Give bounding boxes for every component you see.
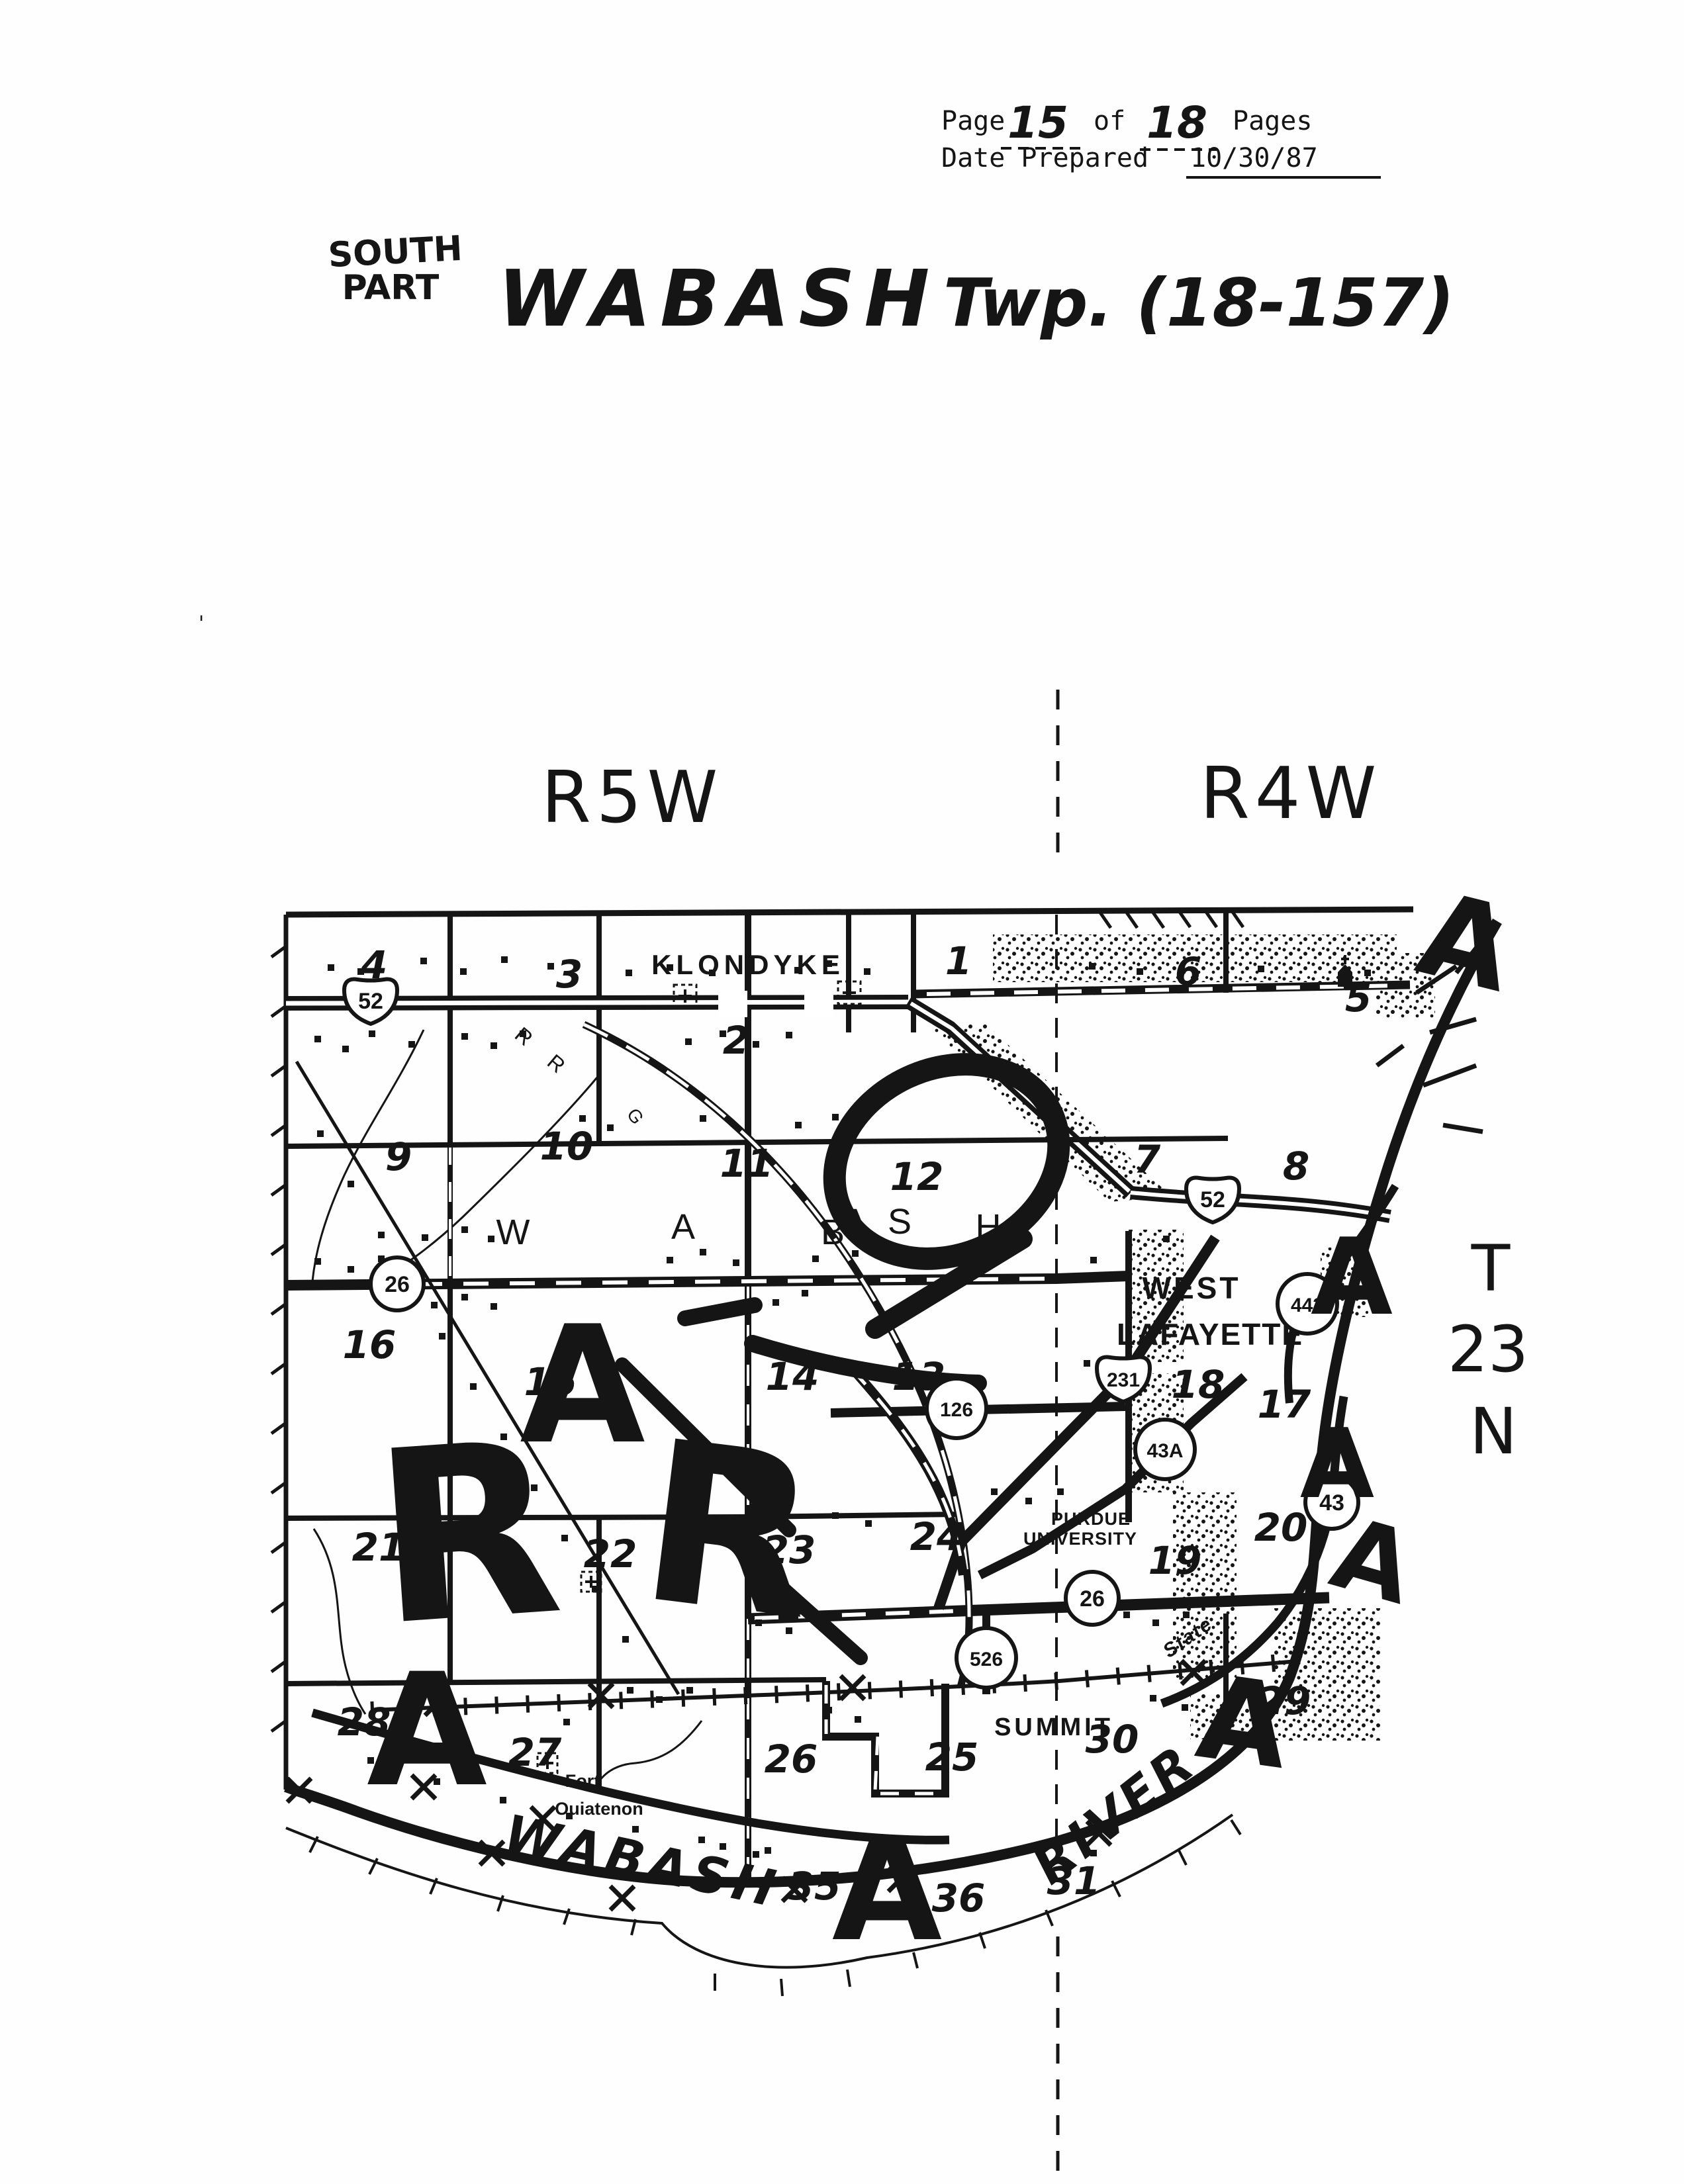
route-number: 231 <box>1107 1369 1140 1391</box>
place-label-purdue-2: UNIVERSITY <box>1023 1529 1137 1549</box>
house-dot <box>852 1250 859 1257</box>
house-dot <box>328 964 334 971</box>
house-dot <box>314 1036 321 1042</box>
township-letter-H: H <box>976 1207 1002 1247</box>
house-dot <box>422 1234 428 1241</box>
pages-label: Pages <box>1233 106 1312 136</box>
median-break <box>804 991 833 1017</box>
map-title: SOUTH PART WABASH Twp. (18-157) <box>327 229 1454 344</box>
township-n: N <box>1470 1394 1517 1469</box>
house-dot <box>461 1033 468 1040</box>
date-prepared-label: Date Prepared <box>941 143 1148 173</box>
house-dot <box>1089 963 1096 970</box>
house-dot <box>461 1226 468 1233</box>
page-label: Page <box>941 106 1005 136</box>
wabash-township-map: Page 15 of 18 Pages Date Prepared 10/30/… <box>0 0 1684 2184</box>
section-number-18: 18 <box>1172 1362 1225 1407</box>
house-dot <box>439 1333 445 1340</box>
house-dot <box>812 1255 819 1262</box>
house-dot <box>865 1520 872 1527</box>
section-number-27: 27 <box>508 1730 562 1775</box>
house-dot <box>698 1837 705 1843</box>
x-mark <box>841 1676 865 1700</box>
place-label-west-lafayette-1: WEST <box>1143 1271 1241 1305</box>
place-label-klondyke: KLONDYKE <box>651 949 845 980</box>
section-number-26: 26 <box>765 1737 818 1782</box>
house-dot <box>1057 1488 1064 1495</box>
house-dot <box>1183 1612 1190 1618</box>
hand-annotation-letter-A: A <box>367 1641 487 1821</box>
place-label-purdue-1: PURDUE <box>1051 1509 1131 1529</box>
township-letter-A: A <box>671 1207 695 1247</box>
house-dot <box>786 1032 792 1038</box>
house-dot <box>461 1294 468 1300</box>
section-number-10: 10 <box>540 1124 594 1169</box>
hand-annotation-letter-A: A <box>1406 866 1526 1019</box>
house-dot <box>802 1290 808 1297</box>
house-dot <box>470 1383 477 1390</box>
map-north-boundary <box>286 909 1413 915</box>
house-dot <box>348 1181 354 1187</box>
hand-annotation-letter-R: R <box>366 1389 569 1678</box>
house-dot <box>488 1236 494 1242</box>
section-number-4: 4 <box>360 942 387 987</box>
township-t: T <box>1471 1232 1511 1306</box>
house-dot <box>607 1124 614 1131</box>
house-dot <box>656 1696 663 1703</box>
section-road <box>849 915 913 1032</box>
house-dot <box>1090 1257 1097 1263</box>
house-dot <box>342 1046 349 1052</box>
house-dot <box>378 1232 385 1238</box>
house-dot <box>685 1038 692 1045</box>
section-number-25: 25 <box>925 1735 979 1780</box>
house-dot <box>795 1122 802 1128</box>
creek <box>391 1077 597 1273</box>
section-number-6: 6 <box>1175 949 1201 994</box>
section-number-30: 30 <box>1086 1717 1139 1762</box>
hand-annotation-letter-A: A <box>1190 1650 1297 1796</box>
route-number: 126 <box>940 1399 973 1421</box>
house-dot <box>460 968 467 975</box>
place-label-fort-1: Fort <box>565 1771 600 1791</box>
house-dot <box>627 1687 633 1694</box>
section-number-7: 7 <box>1134 1137 1161 1182</box>
house-dot <box>622 1636 629 1643</box>
township-letter-A: A <box>843 1202 866 1242</box>
house-dot <box>1025 1498 1032 1504</box>
section-number-1: 1 <box>945 938 972 983</box>
house-dot <box>686 1687 693 1694</box>
house-dot <box>491 1303 497 1310</box>
section-number-22: 22 <box>584 1531 637 1576</box>
house-dot <box>592 1586 598 1592</box>
township-23n-label: T 23 N <box>1448 1232 1528 1469</box>
section-number-2: 2 <box>723 1018 749 1063</box>
section-number-13: 13 <box>892 1354 946 1399</box>
x-mark <box>610 1886 634 1910</box>
township-letter-W: W <box>496 1212 530 1252</box>
total-pages: 18 <box>1146 97 1207 148</box>
house-dot <box>1084 1360 1090 1367</box>
title-township-suffix: Twp. (18-157) <box>943 264 1454 341</box>
scan-speck: ' <box>199 612 204 635</box>
section-number-9: 9 <box>385 1134 412 1179</box>
house-dot <box>825 1707 832 1713</box>
title-part-bottom: PART <box>342 268 440 308</box>
route-number: 26 <box>1080 1586 1105 1612</box>
house-dot <box>500 1797 506 1803</box>
section-number-11: 11 <box>720 1141 774 1186</box>
section-number-16: 16 <box>343 1322 397 1367</box>
section-number-5: 5 <box>1345 976 1372 1021</box>
house-dot <box>491 1042 497 1049</box>
house-dot <box>832 1114 839 1120</box>
house-dot <box>579 1115 586 1122</box>
house-dot <box>626 970 632 976</box>
hand-annotation-letter-R: R <box>629 1393 830 1670</box>
township-letter-B: B <box>821 1212 845 1252</box>
house-dot <box>1150 1695 1156 1702</box>
house-dot <box>501 956 508 963</box>
house-dot <box>369 1030 375 1037</box>
place-label-railroad: R R <box>510 1023 578 1085</box>
scanned-plat-map-page: Page 15 of 18 Pages Date Prepared 10/30/… <box>0 0 1684 2184</box>
house-dot <box>855 1716 861 1723</box>
house-dot <box>667 1257 673 1263</box>
of-label: of <box>1094 106 1125 136</box>
hand-annotation-letter-A: A <box>1311 1215 1393 1339</box>
house-dot <box>317 1130 324 1137</box>
house-dot <box>1163 1236 1170 1242</box>
house-dot <box>832 1512 839 1519</box>
place-label-railroad-g: G <box>623 1105 648 1128</box>
house-dot <box>408 1041 415 1048</box>
house-dot <box>700 1115 706 1122</box>
house-dot <box>1258 966 1264 972</box>
state-road-circle-43A: 43A <box>1135 1420 1195 1479</box>
hand-annotation-letter-A: A <box>832 1807 942 1973</box>
route-number: 43A <box>1146 1440 1183 1462</box>
place-label-west-lafayette-2: LAFAYETTE <box>1117 1317 1303 1351</box>
section-number-3: 3 <box>556 952 583 997</box>
house-dot <box>314 1258 321 1265</box>
house-dot <box>864 968 870 975</box>
page-number: 15 <box>1007 97 1068 148</box>
section-number-8: 8 <box>1283 1144 1309 1189</box>
us-route-shield-52: 52 <box>1186 1178 1239 1222</box>
house-dot <box>1182 1704 1188 1711</box>
house-dot <box>547 963 554 970</box>
section-number-12: 12 <box>890 1154 944 1199</box>
state-road-circle-26: 26 <box>371 1257 424 1310</box>
title-township-name: WABASH <box>498 253 939 344</box>
route-number: 526 <box>970 1649 1003 1670</box>
house-dot <box>1123 1612 1130 1618</box>
date-prepared-value: 10/30/87 <box>1190 143 1318 173</box>
creek <box>596 1721 702 1787</box>
house-dot <box>765 1847 771 1854</box>
page-header: Page 15 of 18 Pages Date Prepared 10/30/… <box>941 97 1381 177</box>
route-number: 26 <box>385 1272 410 1297</box>
state-road-circle-26: 26 <box>1066 1572 1119 1625</box>
route-number: 52 <box>1200 1187 1225 1212</box>
house-dot <box>348 1266 354 1273</box>
sr26-east <box>748 1598 1329 1619</box>
house-dot <box>420 958 427 964</box>
house-dot <box>1152 1619 1159 1626</box>
township-23: 23 <box>1448 1312 1528 1387</box>
house-dot <box>772 1299 779 1306</box>
state-road-circle-526: 526 <box>957 1628 1016 1688</box>
house-dot <box>1137 968 1143 975</box>
median-break <box>718 991 747 1017</box>
township-letter-S: S <box>888 1202 912 1242</box>
section-number-24: 24 <box>910 1514 964 1559</box>
house-dot <box>753 1041 759 1048</box>
marker-dash <box>685 1305 755 1318</box>
house-dot <box>991 1488 998 1495</box>
section-number-31: 31 <box>1047 1858 1101 1903</box>
section-number-14: 14 <box>766 1354 819 1399</box>
route-number: 52 <box>358 989 383 1014</box>
house-dot <box>733 1259 739 1266</box>
section-number-19: 19 <box>1148 1538 1202 1583</box>
house-dot <box>563 1719 570 1725</box>
range-label-east: R4W <box>1200 752 1382 835</box>
house-dot <box>561 1535 568 1541</box>
house-dot <box>700 1249 706 1255</box>
range-label-west: R5W <box>541 756 724 839</box>
house-dot <box>431 1302 438 1308</box>
